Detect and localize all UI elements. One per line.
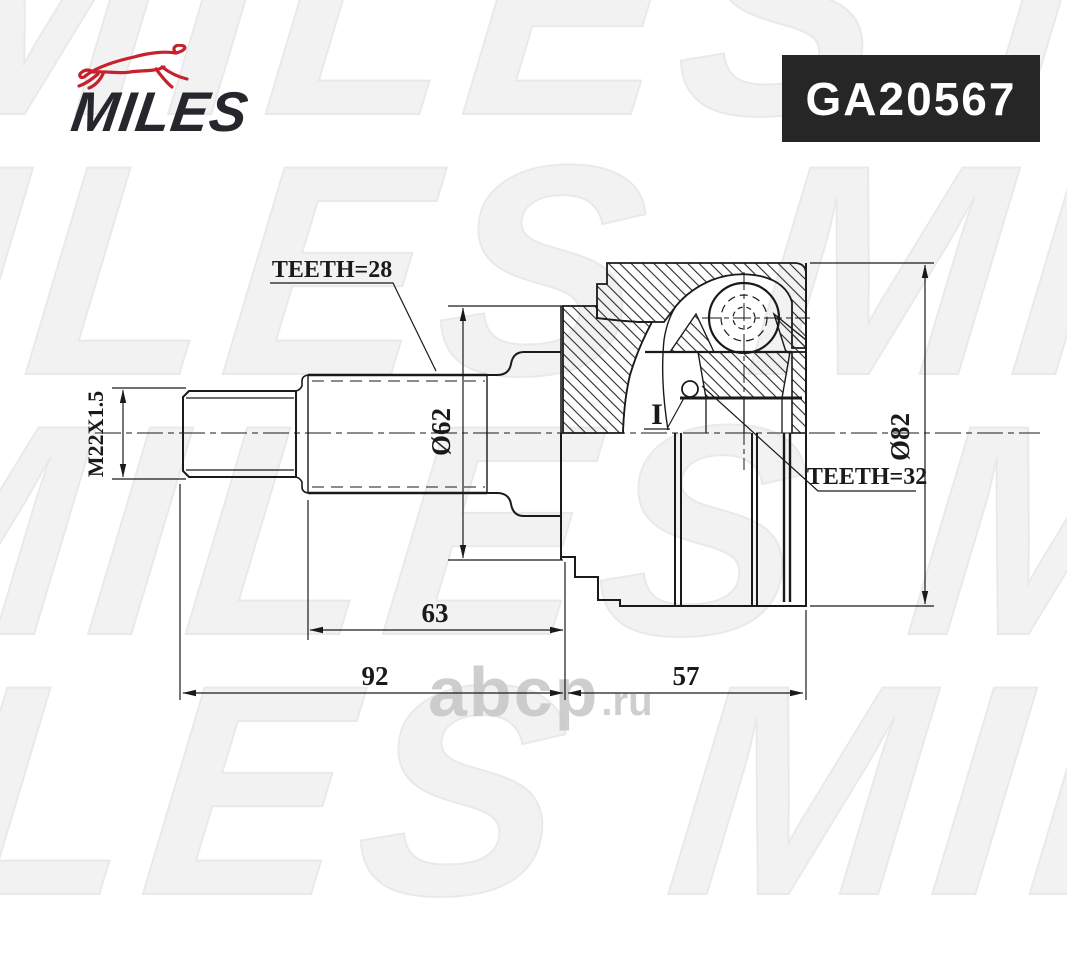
label-length-body: 57 [673, 661, 700, 691]
label-detail-marker: I [651, 398, 663, 431]
part-number-text: GA20567 [806, 72, 1017, 126]
dimension-diameter-outer [810, 263, 934, 606]
label-teeth-outer: TEETH=28 [272, 257, 392, 283]
label-teeth-inner: TEETH=32 [807, 464, 927, 490]
splined-shaft [308, 375, 487, 493]
part-outline [183, 263, 806, 606]
dimension-teeth-outer [270, 283, 436, 371]
brand-logo: MILES [72, 44, 352, 140]
label-thread-spec: M22X1.5 [83, 391, 108, 477]
label-length-spline: 63 [422, 598, 449, 628]
label-diameter-inner: Ø62 [426, 408, 456, 456]
brand-logo-text: MILES [68, 84, 356, 140]
label-diameter-outer: Ø82 [885, 413, 915, 461]
part-number-badge: GA20567 [782, 55, 1040, 142]
threaded-stub [183, 375, 308, 493]
label-length-shaft: 92 [362, 661, 389, 691]
